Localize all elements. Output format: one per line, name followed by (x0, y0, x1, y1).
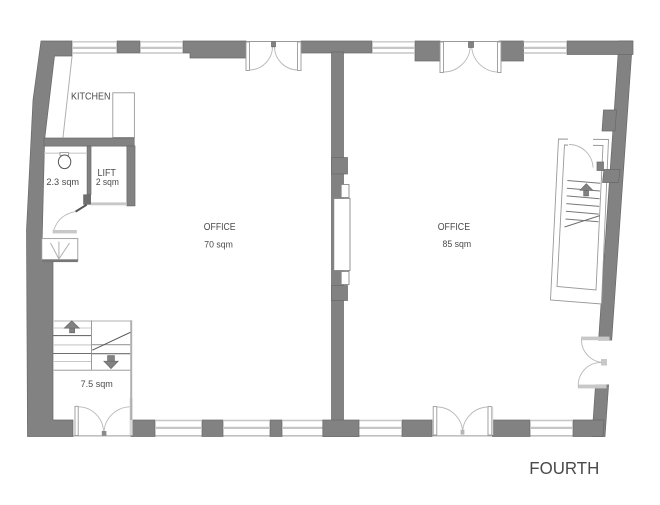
svg-text:85 sqm: 85 sqm (443, 239, 472, 250)
svg-text:OFFICE: OFFICE (204, 222, 236, 233)
svg-text:2 sqm: 2 sqm (96, 177, 119, 188)
svg-text:7.5 sqm: 7.5 sqm (81, 379, 113, 390)
svg-text:KITCHEN: KITCHEN (71, 92, 111, 103)
svg-text:2.3 sqm: 2.3 sqm (46, 177, 79, 188)
svg-text:FOURTH: FOURTH (529, 458, 599, 478)
svg-text:OFFICE: OFFICE (438, 222, 471, 233)
svg-text:70 sqm: 70 sqm (204, 240, 233, 251)
